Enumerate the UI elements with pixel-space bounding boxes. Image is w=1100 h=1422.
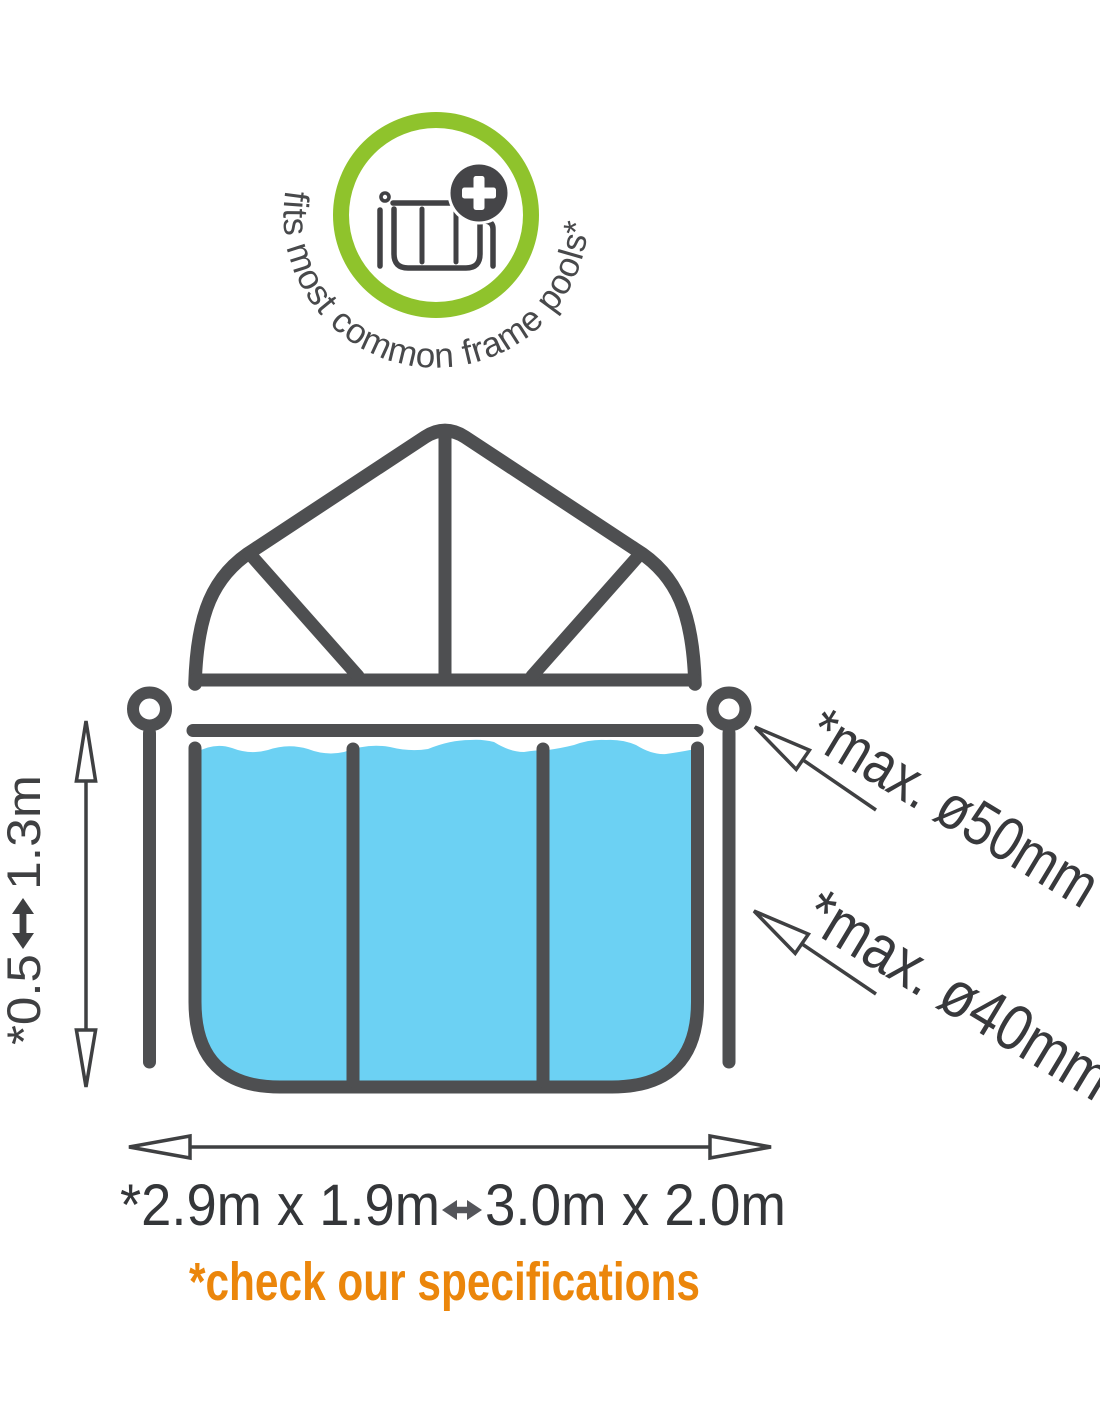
svg-text:3.0m x 2.0m: 3.0m x 2.0m <box>485 1173 786 1238</box>
svg-text:*2.9m x 1.9m: *2.9m x 1.9m <box>120 1173 440 1238</box>
svg-text:*0.5: *0.5 <box>0 954 50 1045</box>
svg-text:*check our specifications: *check our specifications <box>189 1252 700 1312</box>
svg-text:1.3m: 1.3m <box>0 775 50 890</box>
